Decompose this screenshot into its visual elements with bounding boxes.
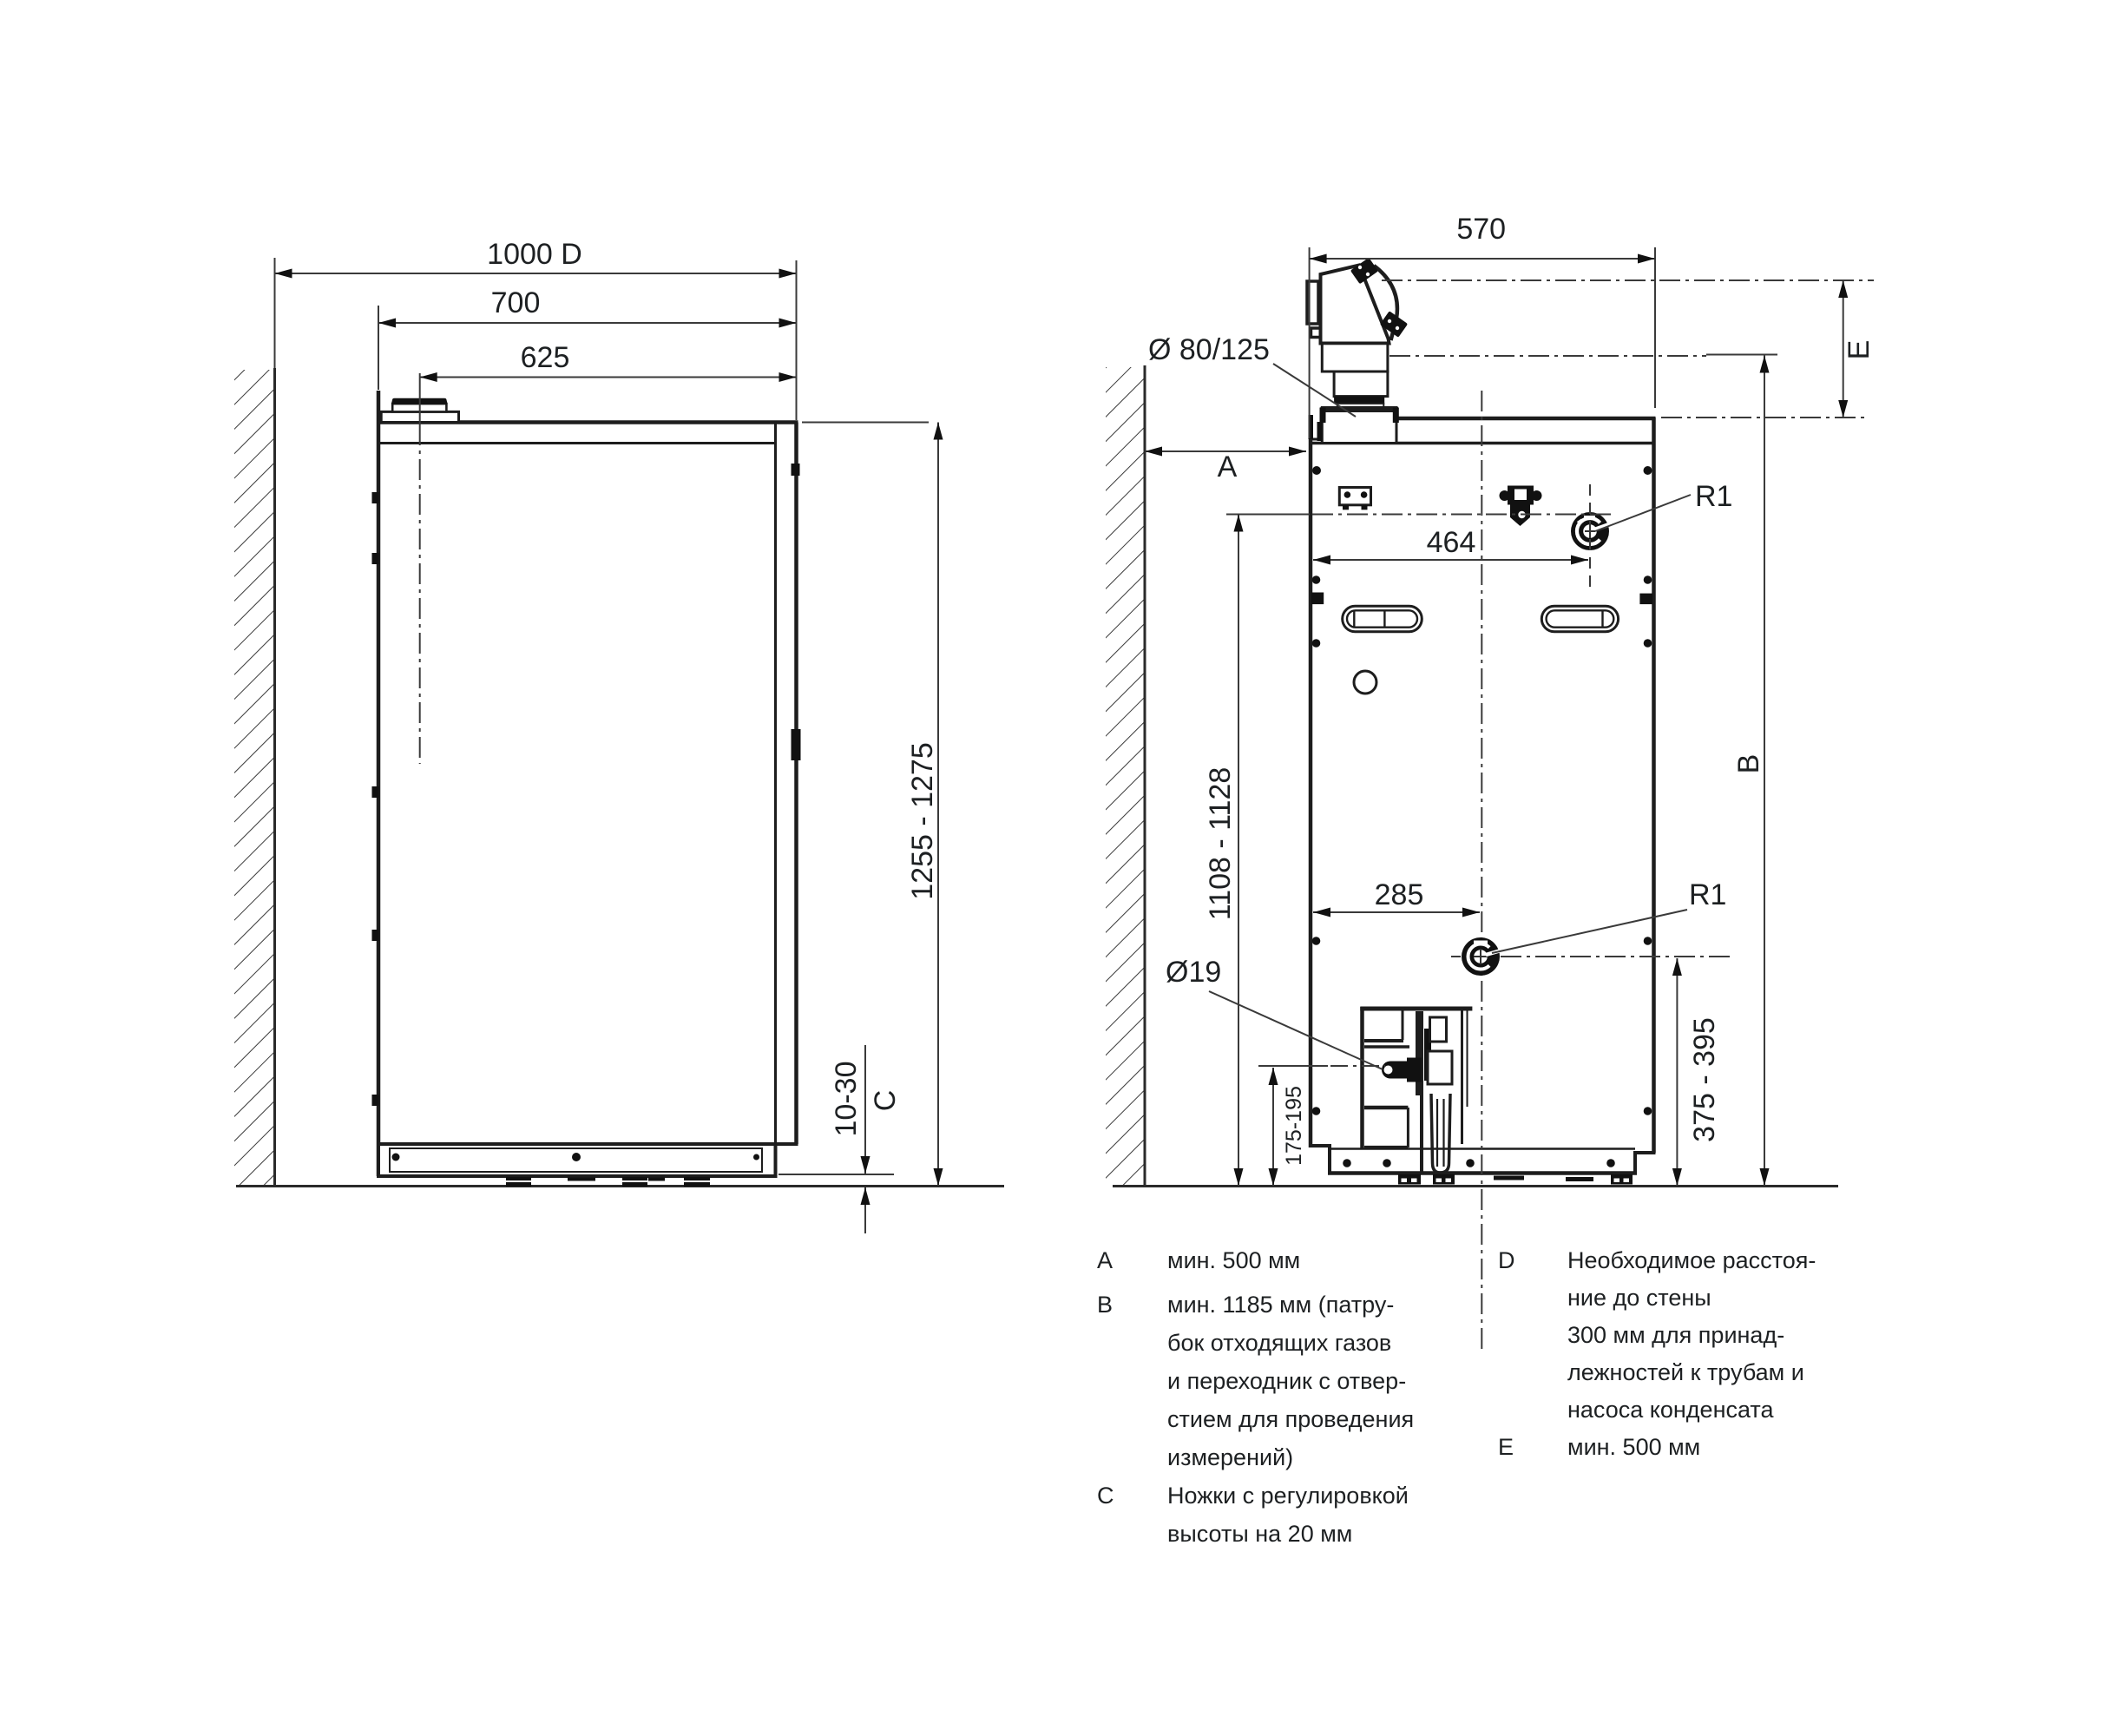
svg-text:R1: R1 (1689, 878, 1726, 911)
svg-text:E: E (1843, 340, 1876, 360)
svg-text:E: E (1498, 1434, 1514, 1460)
svg-text:лежностей к трубам и: лежностей к трубам и (1567, 1359, 1804, 1385)
svg-text:Ножки с регулировкой: Ножки с регулировкой (1167, 1483, 1409, 1509)
svg-text:Ø19: Ø19 (1166, 956, 1221, 989)
svg-text:измерений): измерений) (1167, 1444, 1293, 1470)
svg-text:мин. 500 мм: мин. 500 мм (1567, 1434, 1700, 1460)
svg-text:B: B (1097, 1292, 1113, 1318)
svg-text:насоса конденсата: насоса конденсата (1567, 1397, 1774, 1423)
svg-text:R1: R1 (1695, 480, 1732, 513)
svg-text:Необходимое расстоя-: Необходимое расстоя- (1567, 1247, 1816, 1273)
svg-text:A: A (1097, 1247, 1113, 1273)
svg-text:375 - 395: 375 - 395 (1688, 1017, 1721, 1142)
svg-text:570: 570 (1456, 213, 1506, 246)
svg-text:D: D (1498, 1247, 1515, 1273)
svg-text:1000 D: 1000 D (487, 238, 582, 271)
svg-text:625: 625 (521, 341, 570, 374)
svg-text:и переходник с отвер-: и переходник с отвер- (1167, 1368, 1406, 1394)
svg-text:464: 464 (1427, 526, 1476, 559)
svg-text:высоты на 20 мм: высоты на 20 мм (1167, 1521, 1352, 1547)
svg-text:B: B (1732, 754, 1765, 774)
svg-text:C: C (869, 1090, 902, 1112)
svg-text:ние до стены: ние до стены (1567, 1285, 1711, 1311)
svg-text:300 мм для принад-: 300 мм для принад- (1567, 1322, 1784, 1348)
svg-text:Ø 80/125: Ø 80/125 (1148, 333, 1270, 366)
svg-text:175-195: 175-195 (1282, 1086, 1306, 1166)
svg-text:1108 - 1128: 1108 - 1128 (1204, 767, 1237, 920)
svg-text:285: 285 (1375, 878, 1424, 911)
svg-text:бок отходящих газов: бок отходящих газов (1167, 1330, 1391, 1356)
svg-text:1255 - 1275: 1255 - 1275 (906, 742, 939, 900)
svg-text:700: 700 (491, 286, 541, 319)
svg-text:C: C (1097, 1483, 1114, 1509)
svg-text:мин. 1185 мм (патру-: мин. 1185 мм (патру- (1167, 1292, 1394, 1318)
svg-text:мин. 500 мм: мин. 500 мм (1167, 1247, 1300, 1273)
svg-text:10-30: 10-30 (830, 1062, 863, 1137)
svg-text:A: A (1218, 450, 1238, 483)
svg-text:стием для проведения: стием для проведения (1167, 1406, 1414, 1432)
